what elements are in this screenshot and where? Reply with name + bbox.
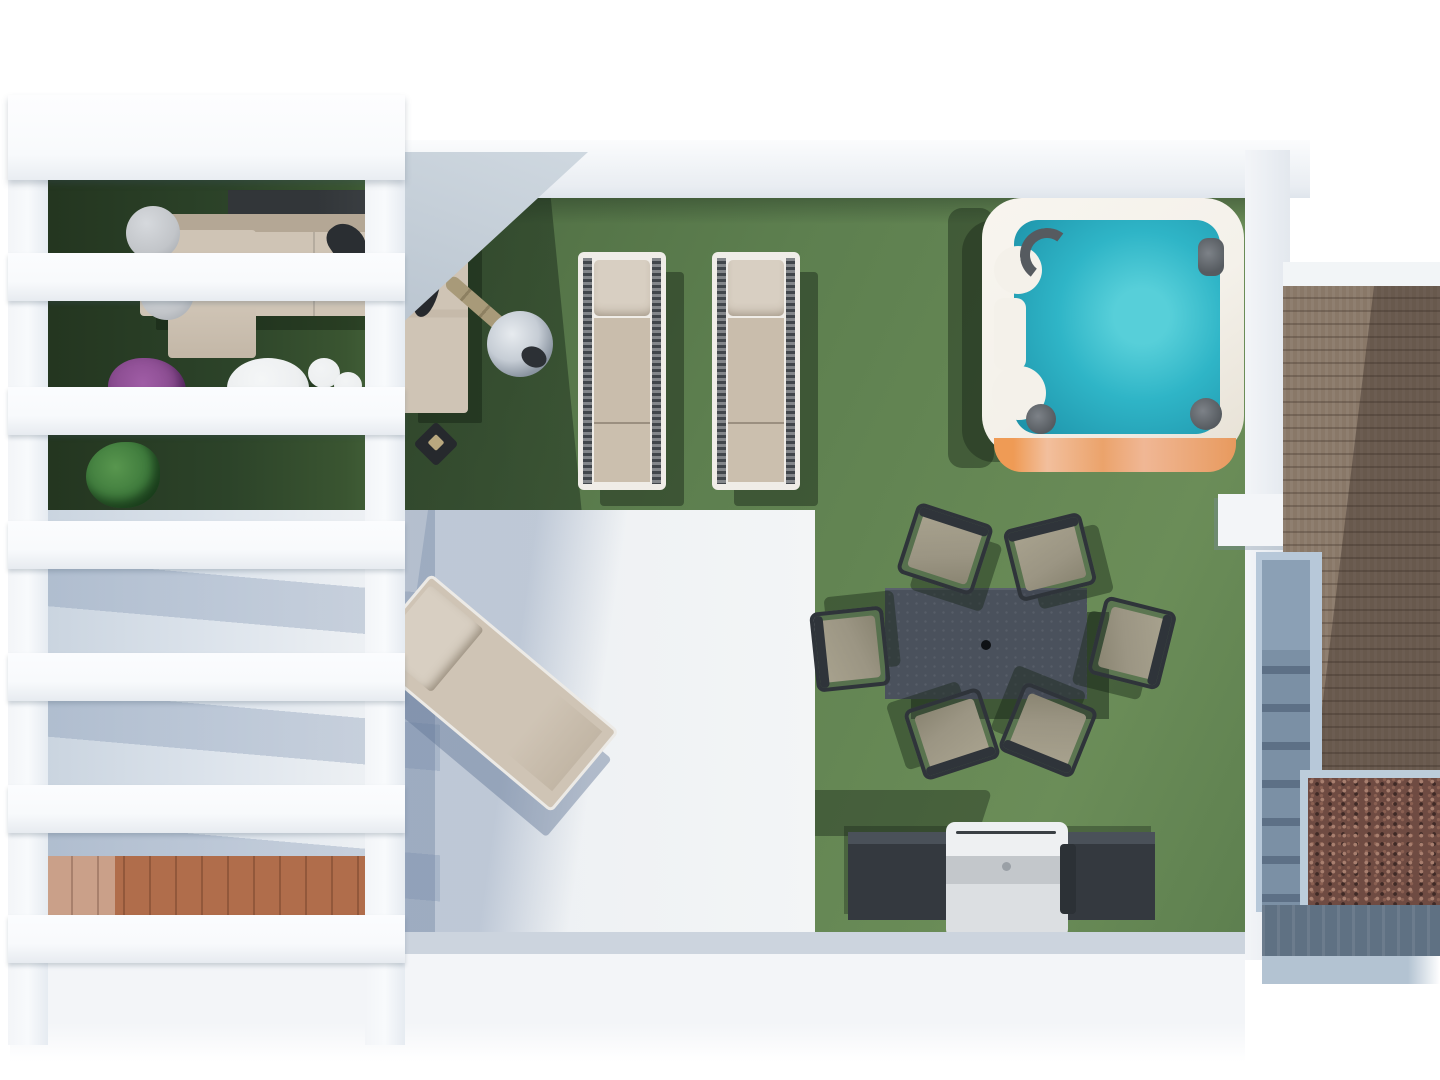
sun-lounger — [712, 252, 800, 490]
hot-tub-corner-jet — [1198, 238, 1224, 276]
lounger-foot — [728, 424, 784, 482]
lounger-cushion — [728, 318, 784, 424]
pergola-slat — [8, 387, 405, 435]
lounger-rail — [583, 258, 592, 484]
bbq-grill — [946, 822, 1068, 938]
terrace-render — [0, 0, 1440, 1080]
hot-tub-corner-jet — [1026, 404, 1056, 434]
pergola-rail-left — [8, 95, 48, 1045]
pergola-slat — [8, 785, 405, 833]
grill-knob — [1002, 862, 1011, 871]
pergola-rail-right — [365, 95, 405, 1045]
dining-chair — [809, 605, 891, 692]
lounger-rail — [717, 258, 726, 484]
hot-tub-wood-base — [994, 438, 1236, 472]
parasol-hole — [981, 640, 991, 650]
deck-wall-band — [1283, 262, 1440, 286]
cylinder-side-table — [126, 206, 180, 260]
pergola-top-beam — [8, 95, 405, 180]
lantern-glass — [428, 434, 445, 451]
parasol-base — [487, 311, 553, 377]
lounger-pillow — [728, 260, 784, 316]
terracotta-wall — [45, 856, 365, 915]
hot-tub-corner-jet — [1190, 398, 1222, 430]
pergola-slat — [8, 521, 405, 569]
stair-lower-face — [1262, 905, 1440, 956]
dining-table — [885, 588, 1087, 699]
pergola-slat — [8, 653, 405, 701]
sun-lounger — [578, 252, 666, 490]
stair-landing — [1262, 956, 1440, 984]
wall-jog — [1218, 494, 1290, 546]
gravel-bed — [1300, 770, 1440, 921]
pergola-slat — [8, 253, 405, 301]
lounger-foot — [594, 424, 650, 482]
lounger-pillow — [594, 260, 650, 316]
lounger-rail — [652, 258, 661, 484]
hot-tub-seat-ledge — [994, 298, 1026, 370]
lounger-rail — [786, 258, 795, 484]
grill-side-shelf — [1060, 844, 1076, 914]
green-plant — [86, 442, 160, 508]
pergola-slat — [8, 915, 405, 963]
lounger-cushion — [594, 318, 650, 424]
grill-vent — [956, 831, 1056, 834]
